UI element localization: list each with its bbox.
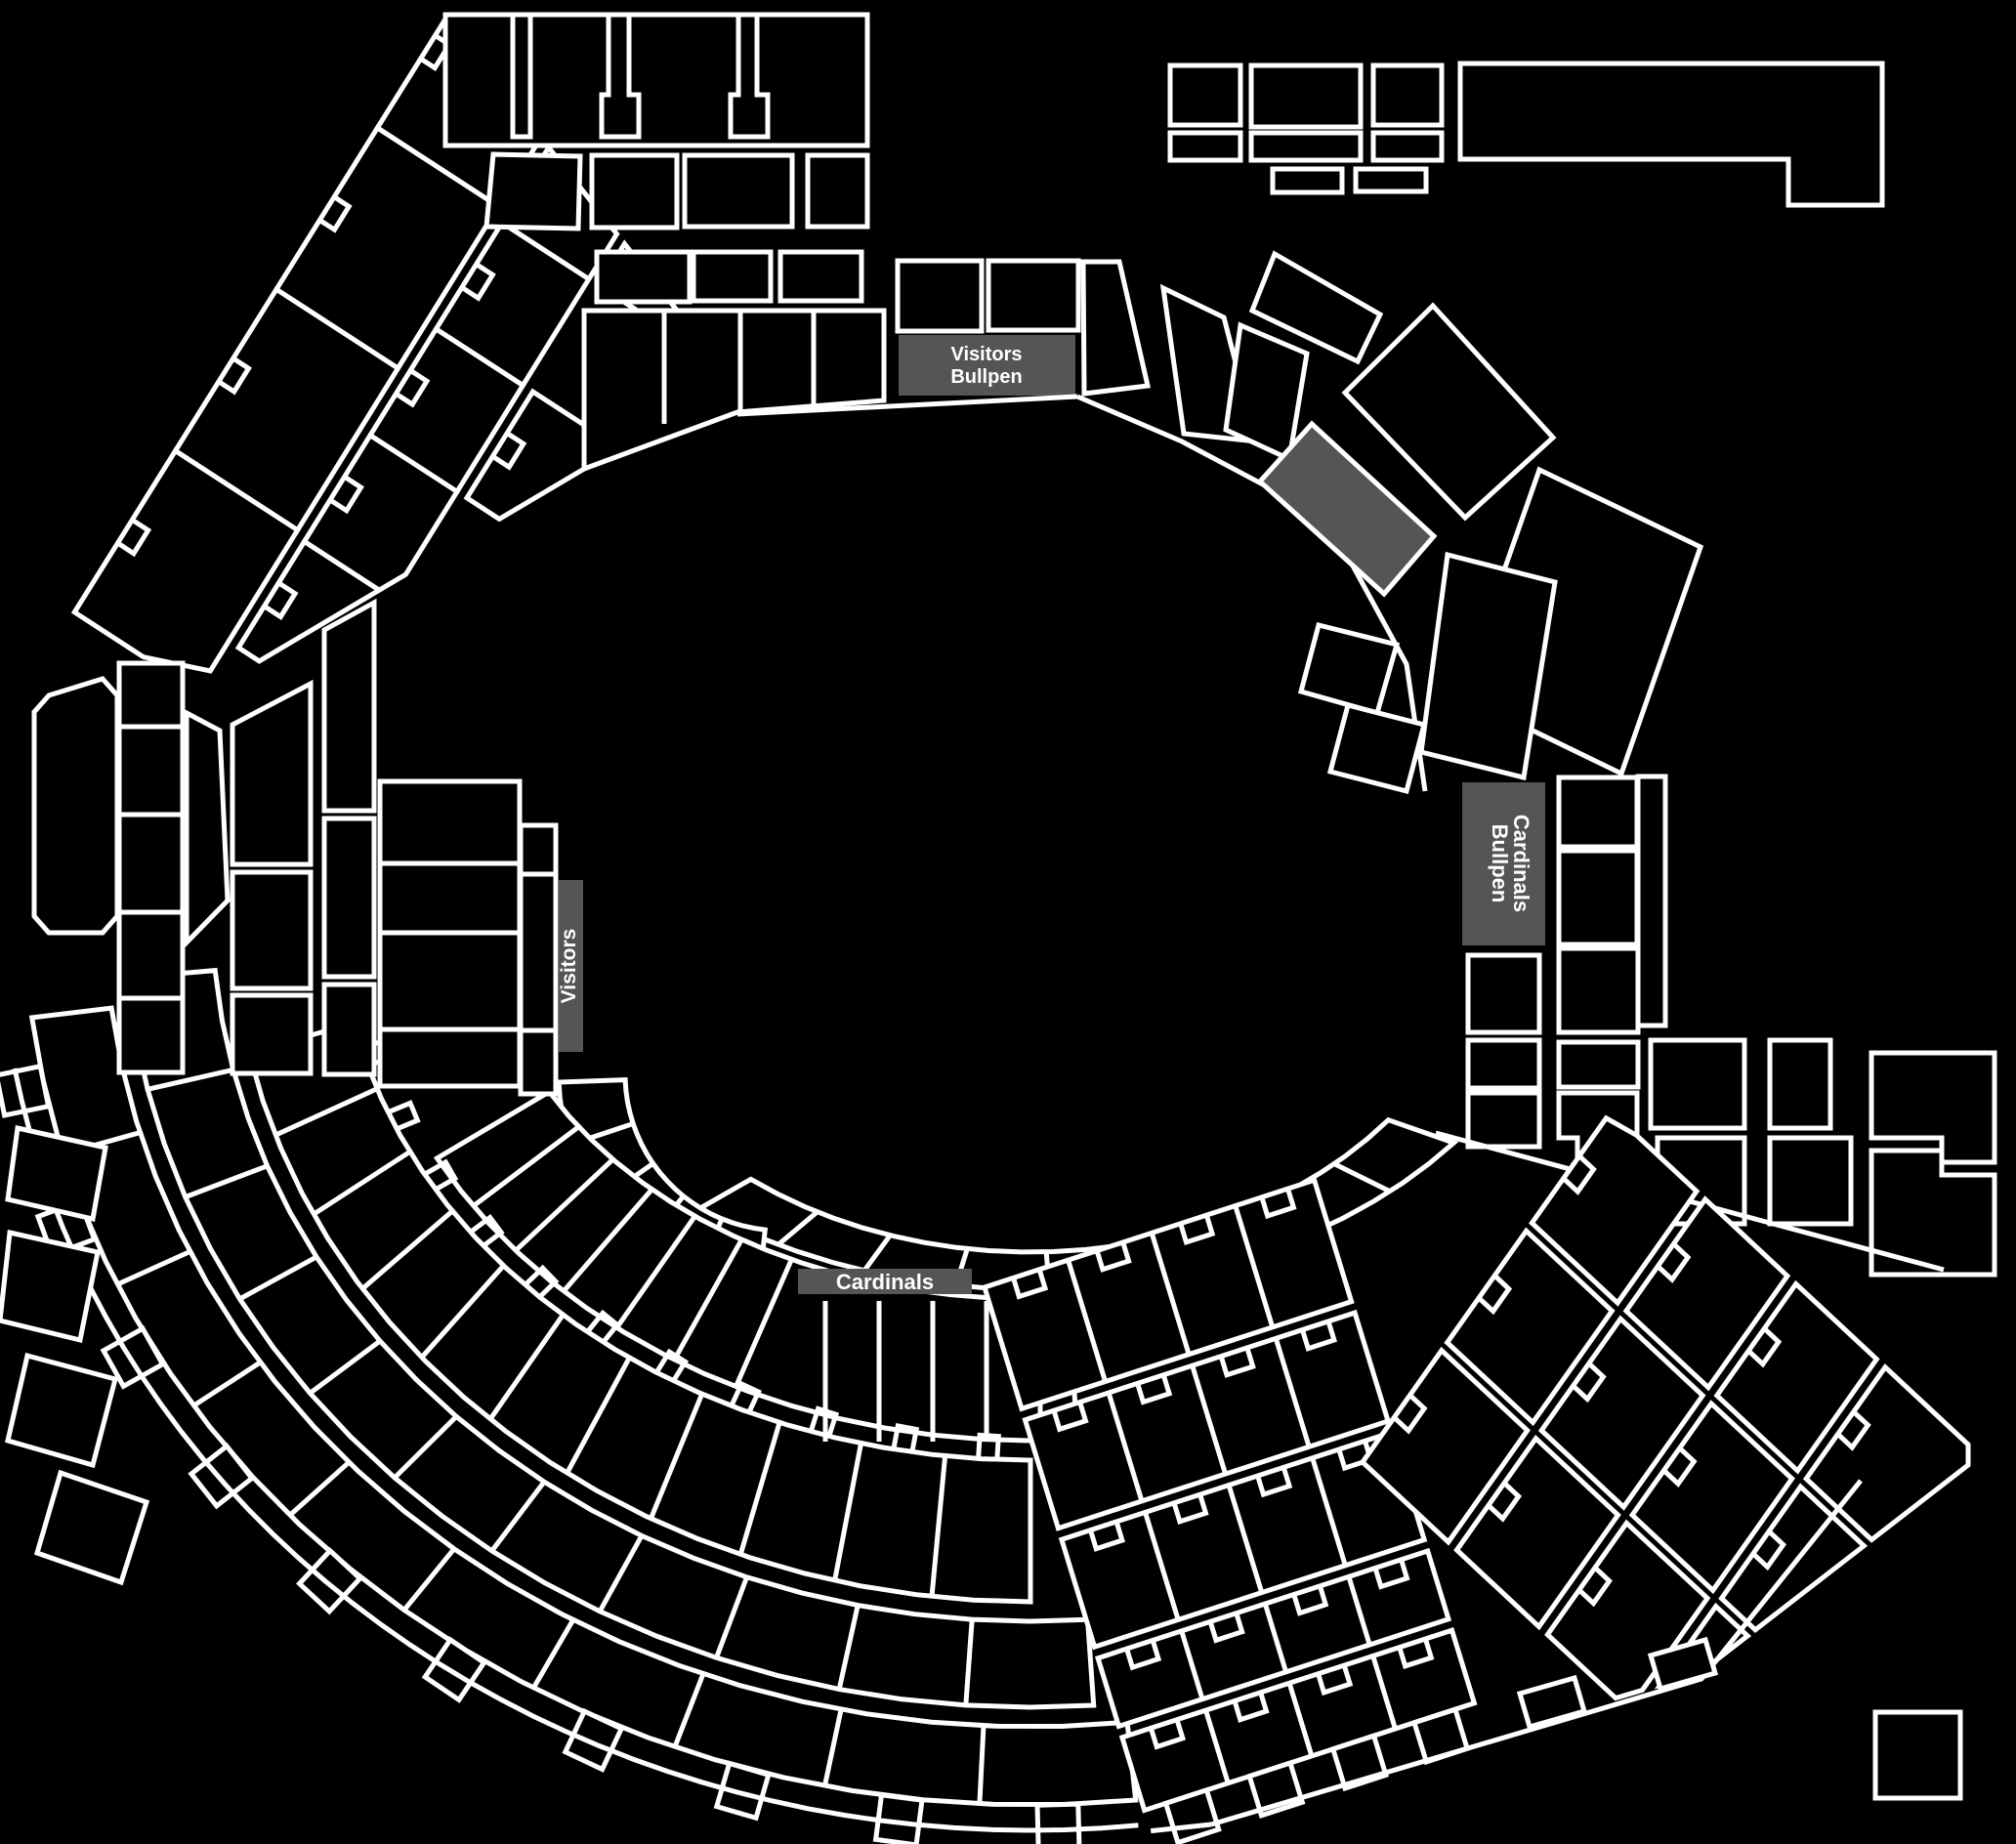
svg-text:Visitors: Visitors [951,344,1023,365]
svg-text:CardinalsBullpen: CardinalsBullpen [1488,815,1533,912]
svg-text:Bullpen: Bullpen [950,366,1022,388]
svg-text:Visitors: Visitors [558,929,580,1004]
svg-text:Cardinals: Cardinals [836,1270,934,1294]
